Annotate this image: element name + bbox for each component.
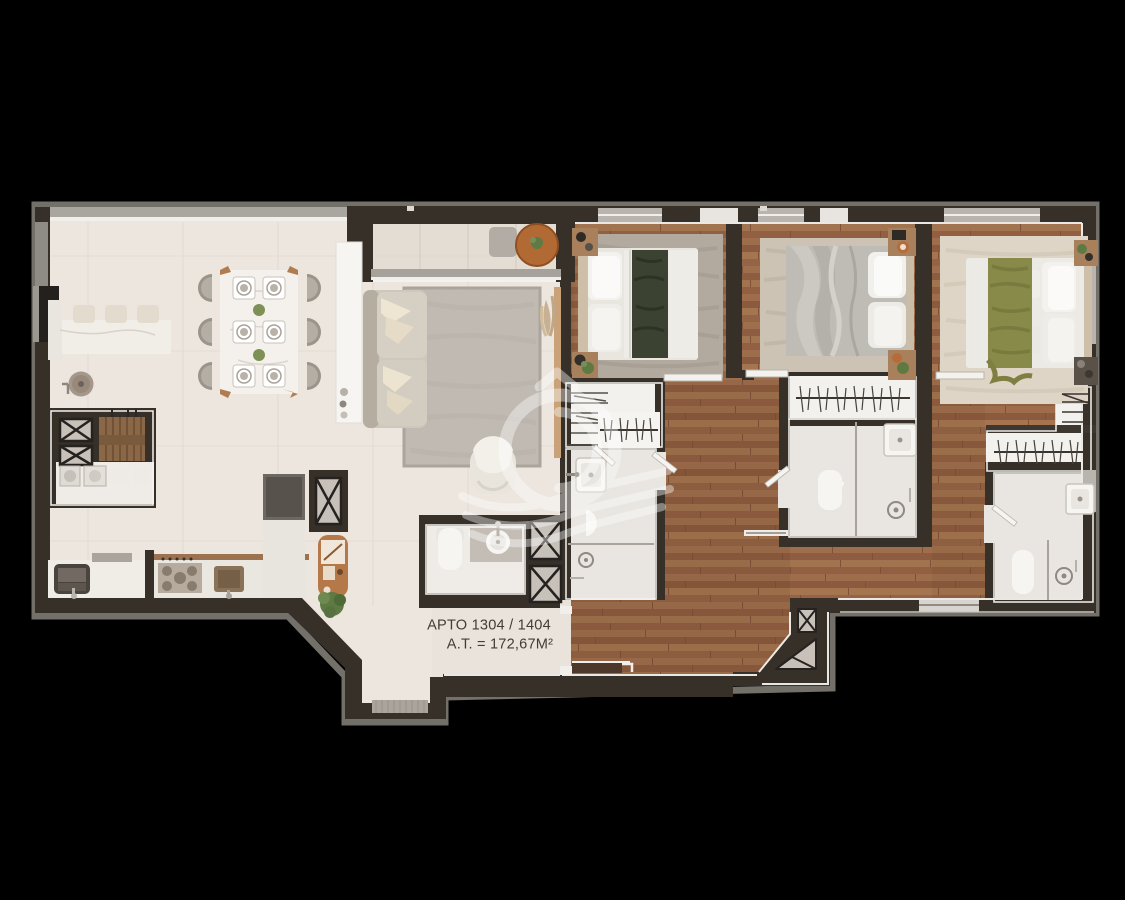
svg-text:A.T. = 172,67M²: A.T. = 172,67M² [447,637,553,653]
svg-text:APTO 1304 / 1404: APTO 1304 / 1404 [427,618,551,634]
